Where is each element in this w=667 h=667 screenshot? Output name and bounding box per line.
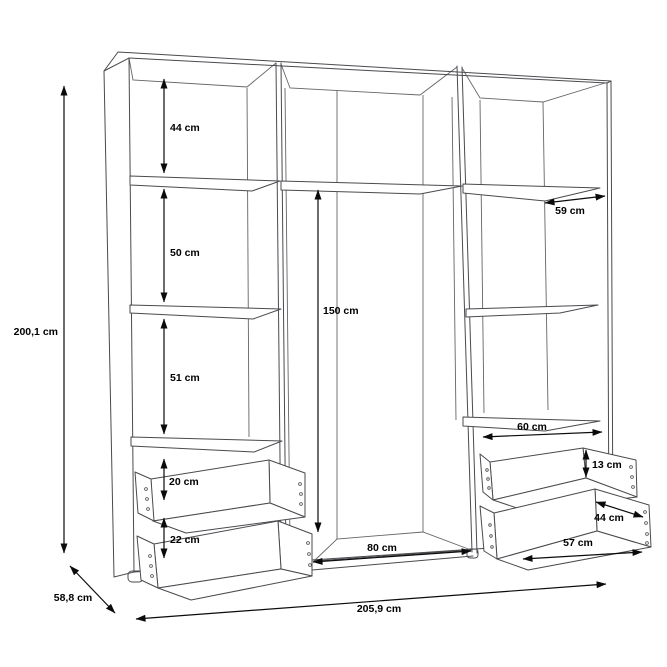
dim-label-57cm: 57 cm bbox=[563, 537, 593, 549]
dim-label-59cm: 59 cm bbox=[555, 205, 585, 217]
left-shelf-2 bbox=[130, 305, 281, 319]
interior-ceiling-lines bbox=[129, 58, 605, 102]
partitions bbox=[276, 63, 477, 557]
right-back-left-corner bbox=[480, 100, 484, 413]
middle-ceiling bbox=[281, 64, 457, 95]
left-ceiling bbox=[129, 58, 276, 87]
diagram-canvas: 200,1 cm 58,8 cm 205,9 cm 44 cm 50 cm 51… bbox=[0, 0, 667, 667]
dim-left-compartment-middle: 50 cm bbox=[164, 189, 200, 302]
partition-right-back-edge bbox=[452, 97, 456, 420]
dim-label-60cm: 60 cm bbox=[517, 421, 547, 433]
dim-label-22cm: 22 cm bbox=[170, 534, 200, 546]
top-front-edge bbox=[129, 58, 607, 83]
dim-middle-hanging-height: 150 cm bbox=[318, 190, 359, 532]
left-shelf-3 bbox=[131, 437, 282, 452]
top-outer-edge bbox=[104, 52, 611, 83]
dim-label-50cm: 50 cm bbox=[170, 247, 200, 259]
middle-top-shelf bbox=[281, 181, 462, 194]
right-back-right-corner bbox=[543, 102, 548, 410]
left-side-panel bbox=[104, 58, 134, 577]
drawer-left-lower bbox=[137, 521, 312, 600]
drawer-front-edge bbox=[135, 472, 154, 521]
dim-label-44cm: 44 cm bbox=[170, 122, 200, 134]
left-back-corner bbox=[247, 88, 249, 437]
dim-left-compartment-top: 44 cm bbox=[164, 79, 200, 173]
left-shelf-1 bbox=[130, 176, 280, 191]
dim-overall-depth: 58,8 cm bbox=[54, 566, 115, 613]
dim-label-overall-height: 200,1 cm bbox=[14, 326, 58, 338]
dim-label-44cm-right: 44 cm bbox=[594, 512, 624, 524]
dim-label-80cm: 80 cm bbox=[367, 542, 397, 554]
dim-label-overall-depth: 58,8 cm bbox=[54, 592, 93, 604]
dim-overall-height: 200,1 cm bbox=[14, 86, 64, 553]
dim-label-overall-width: 205,9 cm bbox=[357, 603, 401, 615]
drawer-side-panel bbox=[278, 521, 312, 576]
dim-left-compartment-bottom: 51 cm bbox=[164, 319, 200, 434]
wardrobe-dimension-diagram: 200,1 cm 58,8 cm 205,9 cm 44 cm 50 cm 51… bbox=[0, 0, 667, 667]
drawer-front-edge bbox=[480, 506, 497, 559]
drawer-front-edge bbox=[480, 454, 493, 500]
right-shelf-2 bbox=[466, 305, 598, 317]
dim-label-20cm: 20 cm bbox=[169, 476, 199, 488]
shelves bbox=[130, 176, 600, 452]
dim-label-51cm: 51 cm bbox=[170, 372, 200, 384]
dim-label-13cm: 13 cm bbox=[592, 459, 622, 471]
dim-label-150cm: 150 cm bbox=[323, 305, 359, 317]
